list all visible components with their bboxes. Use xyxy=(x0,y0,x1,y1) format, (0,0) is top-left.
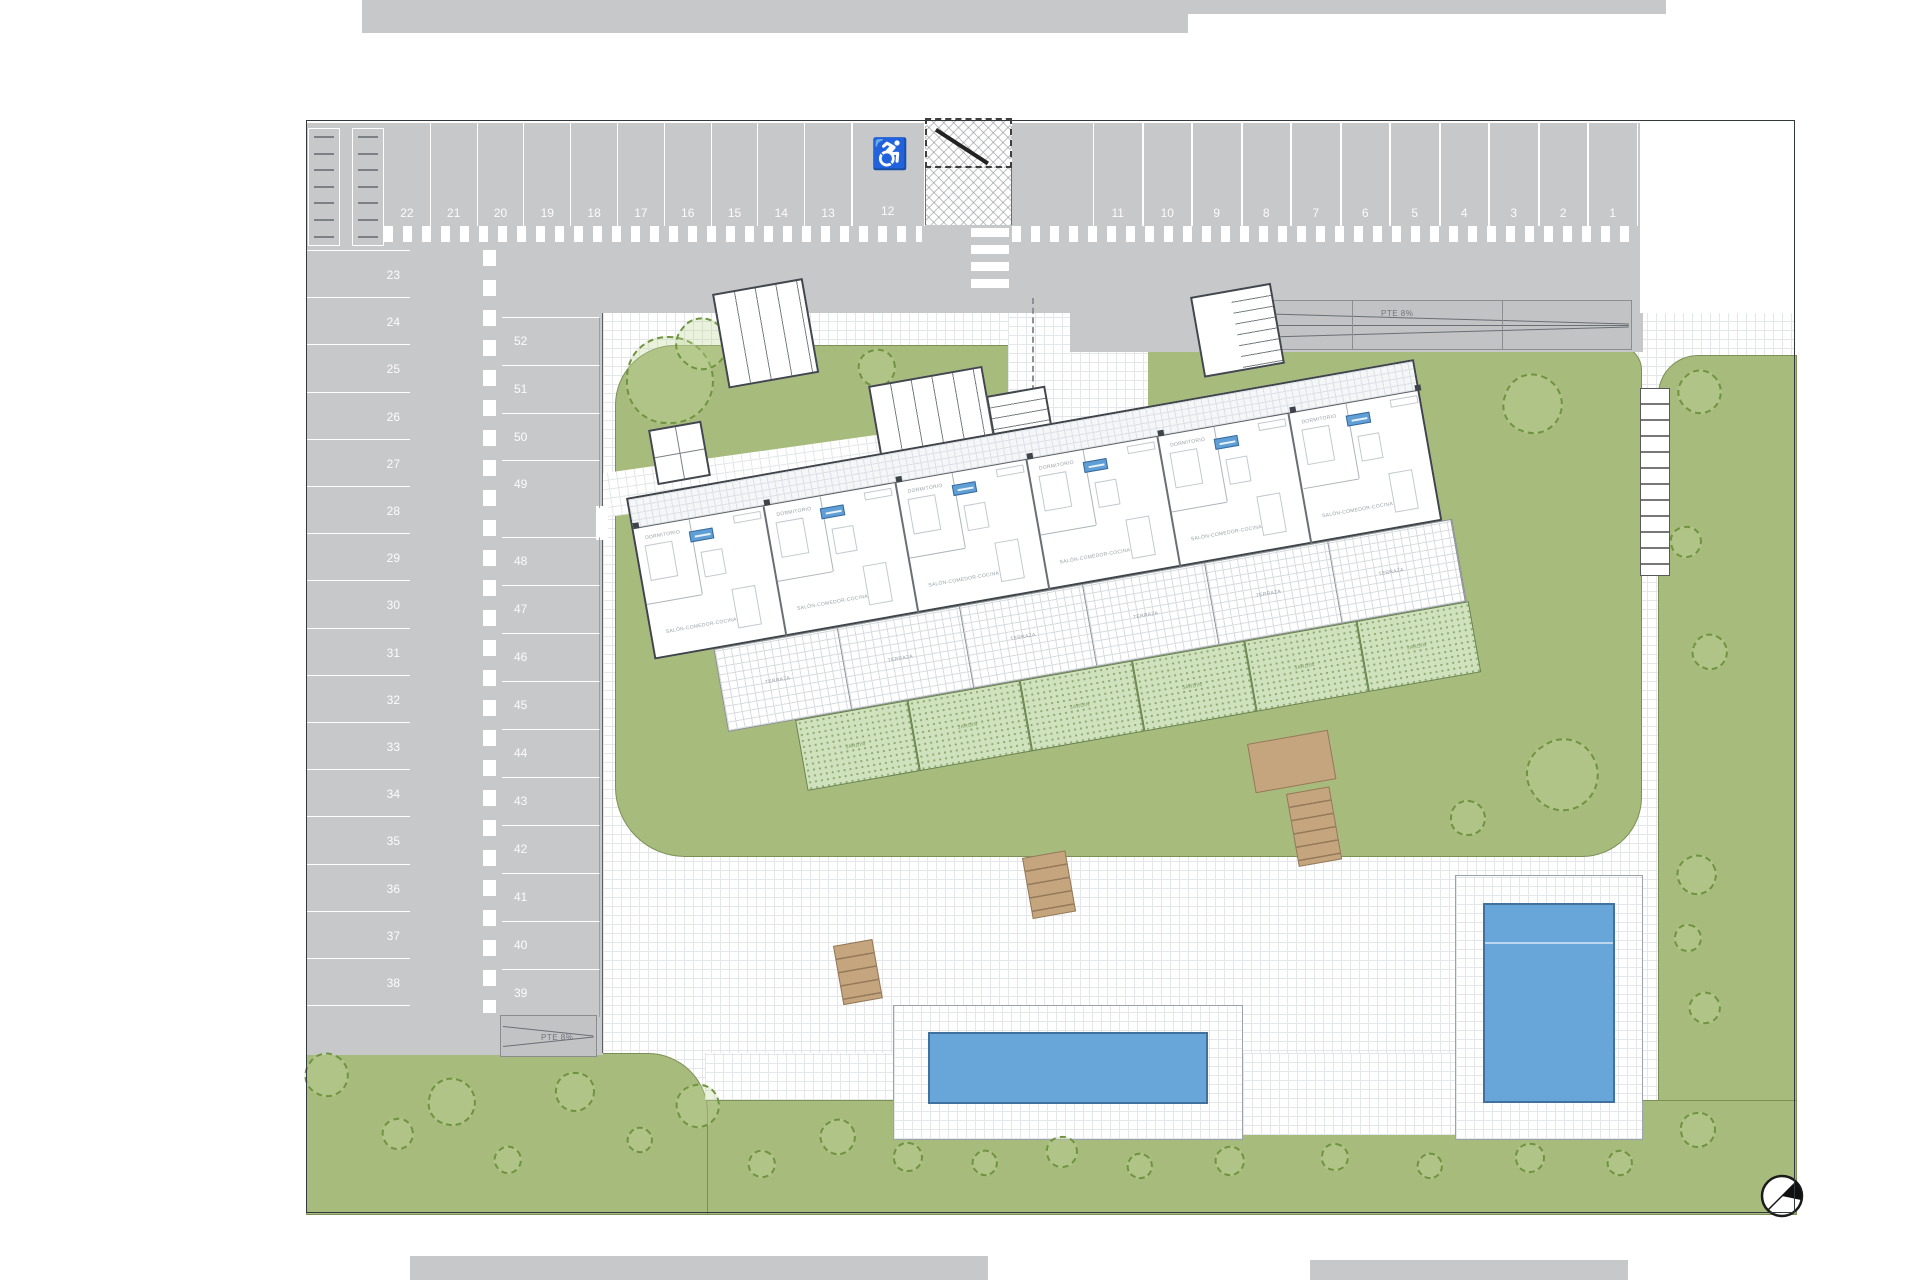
parking-stall-34: 34 xyxy=(306,769,410,816)
bathroom xyxy=(1094,479,1120,508)
tree-6 xyxy=(1669,361,1731,423)
tree-10 xyxy=(1672,922,1704,954)
parking-stall-52: 52 xyxy=(502,317,600,365)
terrace-label: TERRAZA xyxy=(1010,632,1036,642)
parking-stall-6: 6 xyxy=(1341,123,1391,226)
room-label-bedroom: DORMITORIO xyxy=(1039,460,1075,472)
stall-number-20: 20 xyxy=(478,207,524,219)
parking-stall-47: 47 xyxy=(502,585,600,633)
tree-5 xyxy=(1448,798,1487,837)
stall-number-49: 49 xyxy=(514,478,527,490)
room-label-bedroom: DORMITORIO xyxy=(1301,413,1337,425)
unit-marker-3 xyxy=(951,481,977,496)
stall-number-44: 44 xyxy=(514,747,527,759)
room-label-living: SALÓN-COMEDOR-COCINA xyxy=(1190,524,1262,542)
apartment-unit-3: SALÓN-COMEDOR-COCINADORMITORIO xyxy=(896,460,1051,615)
parking-stall-38: 38 xyxy=(306,958,410,1005)
tree-12 xyxy=(1678,1110,1718,1150)
tree-14 xyxy=(377,1113,419,1155)
bathroom xyxy=(700,548,726,577)
garden-label: JARDÍN xyxy=(957,721,978,730)
parking-stall-13: 13 xyxy=(805,123,852,226)
parking-stall-36: 36 xyxy=(306,864,410,911)
room-label-bedroom: DORMITORIO xyxy=(1170,437,1206,449)
parking-stall-16: 16 xyxy=(665,123,712,226)
stall-number-42: 42 xyxy=(514,843,527,855)
room-label-living: SALÓN-COMEDOR-COCINA xyxy=(1059,547,1131,565)
room-label-bedroom: DORMITORIO xyxy=(907,483,943,495)
tree-26 xyxy=(1210,1141,1251,1182)
stall-number-14: 14 xyxy=(758,207,804,219)
parking-stall-2: 2 xyxy=(1539,123,1589,226)
tree-4 xyxy=(1513,725,1612,824)
unit-marker-2 xyxy=(820,504,846,519)
tree-28 xyxy=(1412,1148,1449,1185)
tree-23 xyxy=(967,1145,1004,1182)
parking-stall-15: 15 xyxy=(712,123,759,226)
tree-21 xyxy=(813,1112,863,1162)
garden-label: JARDÍN xyxy=(1070,702,1091,711)
tree-30 xyxy=(1602,1145,1638,1181)
stall-number-47: 47 xyxy=(514,603,527,615)
parking-stall-50: 50 xyxy=(502,413,600,461)
stall-number-25: 25 xyxy=(387,363,400,375)
tree-24 xyxy=(1043,1133,1081,1171)
bathroom xyxy=(832,525,858,554)
room-label-living: SALÓN-COMEDOR-COCINA xyxy=(928,570,1000,588)
stall-number-3: 3 xyxy=(1490,207,1538,219)
parking-stall-42: 42 xyxy=(502,825,600,873)
parking-stall-3: 3 xyxy=(1489,123,1539,226)
compass-rose xyxy=(1758,1172,1806,1220)
apartment-unit-5: SALÓN-COMEDOR-COCINADORMITORIO xyxy=(1159,413,1314,568)
unit-marker-6 xyxy=(1345,412,1371,427)
room-label-bedroom: DORMITORIO xyxy=(776,506,812,518)
tree-29 xyxy=(1513,1141,1546,1174)
stall-number-34: 34 xyxy=(387,788,400,800)
tree-8 xyxy=(1686,628,1734,676)
parking-stall-30: 30 xyxy=(306,580,410,627)
room-label-living: SALÓN-COMEDOR-COCINA xyxy=(665,617,737,635)
garden-label: JARDÍN xyxy=(845,741,866,750)
tree-7 xyxy=(1667,523,1705,561)
stall-number-39: 39 xyxy=(514,987,527,999)
stall-number-17: 17 xyxy=(618,207,664,219)
stall-number-26: 26 xyxy=(387,411,400,423)
parking-stall-37: 37 xyxy=(306,911,410,958)
apartment-unit-1: SALÓN-COMEDOR-COCINADORMITORIO xyxy=(634,506,789,661)
stall-number-40: 40 xyxy=(514,939,527,951)
stall-number-50: 50 xyxy=(514,431,527,443)
parking-stall-49: 49 xyxy=(502,460,600,508)
stall-number-16: 16 xyxy=(665,207,711,219)
parking-stall-24: 24 xyxy=(306,297,410,344)
stall-number-28: 28 xyxy=(387,505,400,517)
tree-3 xyxy=(1494,365,1572,443)
parking-stall-32: 32 xyxy=(306,675,410,722)
parking-stall-10: 10 xyxy=(1143,123,1193,226)
bathroom xyxy=(963,502,989,531)
parking-stall-31: 31 xyxy=(306,628,410,675)
parking-stall-45: 45 xyxy=(502,681,600,729)
apartment-unit-6: SALÓN-COMEDOR-COCINADORMITORIO xyxy=(1290,390,1445,545)
room-label-bedroom: DORMITORIO xyxy=(645,529,681,541)
parking-stall-14: 14 xyxy=(758,123,805,226)
parking-stall-11: 11 xyxy=(1093,123,1143,226)
stall-number-9: 9 xyxy=(1193,207,1241,219)
parking-stall-35: 35 xyxy=(306,816,410,863)
stall-number-8: 8 xyxy=(1243,207,1291,219)
parking-stall-20: 20 xyxy=(478,123,525,226)
stall-number-4: 4 xyxy=(1441,207,1489,219)
tree-17 xyxy=(555,1072,596,1113)
stall-number-7: 7 xyxy=(1292,207,1340,219)
parking-stall-51: 51 xyxy=(502,365,600,413)
terrace-label: TERRAZA xyxy=(1378,567,1404,577)
parking-stall-22: 22 xyxy=(384,123,431,226)
parking-stall-9: 9 xyxy=(1192,123,1242,226)
stall-number-46: 46 xyxy=(514,651,527,663)
stall-number-52: 52 xyxy=(514,335,527,347)
terrace-label: TERRAZA xyxy=(1255,589,1281,599)
stall-number-5: 5 xyxy=(1391,207,1439,219)
tree-15 xyxy=(423,1073,482,1132)
stall-number-31: 31 xyxy=(387,647,400,659)
parking-stall-4: 4 xyxy=(1440,123,1490,226)
tree-25 xyxy=(1123,1149,1158,1184)
garden-label: JARDÍN xyxy=(1294,662,1315,671)
room-label-living: SALÓN-COMEDOR-COCINA xyxy=(1322,501,1394,519)
tree-27 xyxy=(1319,1141,1351,1173)
stall-number-18: 18 xyxy=(571,207,617,219)
stall-number-38: 38 xyxy=(387,977,400,989)
parking-stall-19: 19 xyxy=(524,123,571,226)
stall-number-24: 24 xyxy=(387,316,400,328)
stall-number-27: 27 xyxy=(387,458,400,470)
parking-stall-33: 33 xyxy=(306,722,410,769)
stall-number-21: 21 xyxy=(431,207,477,219)
apartment-unit-4: SALÓN-COMEDOR-COCINADORMITORIO xyxy=(1027,437,1182,592)
parking-stall-43: 43 xyxy=(502,777,600,825)
stall-number-48: 48 xyxy=(514,555,527,567)
bed xyxy=(1170,448,1204,488)
bed xyxy=(1301,425,1335,465)
kitchen-counter xyxy=(995,465,1024,478)
stall-number-11: 11 xyxy=(1094,207,1142,219)
terrace-label: TERRAZA xyxy=(1133,610,1159,620)
parking-stall-28: 28 xyxy=(306,486,410,533)
compass-icon xyxy=(1758,1172,1806,1220)
garden-label: JARDÍN xyxy=(1182,682,1203,691)
bathroom xyxy=(1226,455,1252,484)
stall-number-10: 10 xyxy=(1144,207,1192,219)
garden-label: JARDÍN xyxy=(1407,642,1428,651)
parking-stall-21: 21 xyxy=(431,123,478,226)
parking-stall-blank xyxy=(306,1005,410,1052)
stall-number-2: 2 xyxy=(1540,207,1588,219)
parking-stall-8: 8 xyxy=(1242,123,1292,226)
parking-stall-41: 41 xyxy=(502,873,600,921)
stall-number-6: 6 xyxy=(1342,207,1390,219)
parking-stall-17: 17 xyxy=(618,123,665,226)
stall-number-35: 35 xyxy=(387,835,400,847)
parking-stall-46: 46 xyxy=(502,633,600,681)
room-label-living: SALÓN-COMEDOR-COCINA xyxy=(797,594,869,612)
stall-number-37: 37 xyxy=(387,930,400,942)
tree-16 xyxy=(488,1140,527,1179)
parking-stall-44: 44 xyxy=(502,729,600,777)
parking-stall-1: 1 xyxy=(1588,123,1638,226)
parking-stall-5: 5 xyxy=(1390,123,1440,226)
stall-number-15: 15 xyxy=(712,207,758,219)
parking-stall-27: 27 xyxy=(306,439,410,486)
tree-19 xyxy=(671,1079,726,1134)
parking-stall-48: 48 xyxy=(502,537,600,585)
bed xyxy=(1038,471,1072,511)
kitchen-counter xyxy=(1389,395,1418,408)
tree-20 xyxy=(744,1146,780,1182)
parking-stall-40: 40 xyxy=(502,921,600,969)
parking-stall-18: 18 xyxy=(571,123,618,226)
stall-number-23: 23 xyxy=(387,269,400,281)
parking-stall-25: 25 xyxy=(306,344,410,391)
unit-marker-1 xyxy=(689,527,715,542)
stall-number-1: 1 xyxy=(1589,207,1637,219)
tree-9 xyxy=(1670,848,1724,902)
parking-stall-29: 29 xyxy=(306,533,410,580)
unit-marker-4 xyxy=(1083,458,1109,473)
site-plan: PTE 8% PTE 8% ♿ 12 xyxy=(0,0,1920,1280)
kitchen-counter xyxy=(1258,418,1287,431)
parking-stall-26: 26 xyxy=(306,392,410,439)
kitchen-counter xyxy=(1127,441,1156,454)
tree-11 xyxy=(1682,985,1727,1030)
tree-18 xyxy=(622,1122,658,1158)
parking-stall-23: 23 xyxy=(306,250,410,297)
terrace-label: TERRAZA xyxy=(765,675,791,685)
storage-block-a xyxy=(712,278,819,389)
stall-number-33: 33 xyxy=(387,741,400,753)
unit-marker-5 xyxy=(1214,435,1240,450)
parking-stall-39: 39 xyxy=(502,969,600,1017)
stall-number-43: 43 xyxy=(514,795,527,807)
kitchen-counter xyxy=(733,511,762,524)
tree-22 xyxy=(892,1141,924,1173)
stall-number-51: 51 xyxy=(514,383,527,395)
stall-number-22: 22 xyxy=(384,207,430,219)
bed xyxy=(776,517,810,557)
stall-number-30: 30 xyxy=(387,599,400,611)
stall-number-19: 19 xyxy=(524,207,570,219)
bed xyxy=(645,541,679,581)
stair-core-right xyxy=(1190,283,1285,378)
tree-13 xyxy=(297,1045,357,1105)
apartment-unit-2: SALÓN-COMEDOR-COCINADORMITORIO xyxy=(765,483,920,638)
stall-number-41: 41 xyxy=(514,891,527,903)
bed xyxy=(907,494,941,534)
parking-stall-7: 7 xyxy=(1291,123,1341,226)
kitchen-counter xyxy=(864,488,893,501)
terrace-label: TERRAZA xyxy=(887,654,913,664)
bathroom xyxy=(1357,432,1383,461)
stall-number-45: 45 xyxy=(514,699,527,711)
core-elevator xyxy=(648,421,711,486)
stall-number-13: 13 xyxy=(805,207,851,219)
stall-number-29: 29 xyxy=(387,552,400,564)
stall-number-32: 32 xyxy=(387,694,400,706)
stall-number-36: 36 xyxy=(387,883,400,895)
